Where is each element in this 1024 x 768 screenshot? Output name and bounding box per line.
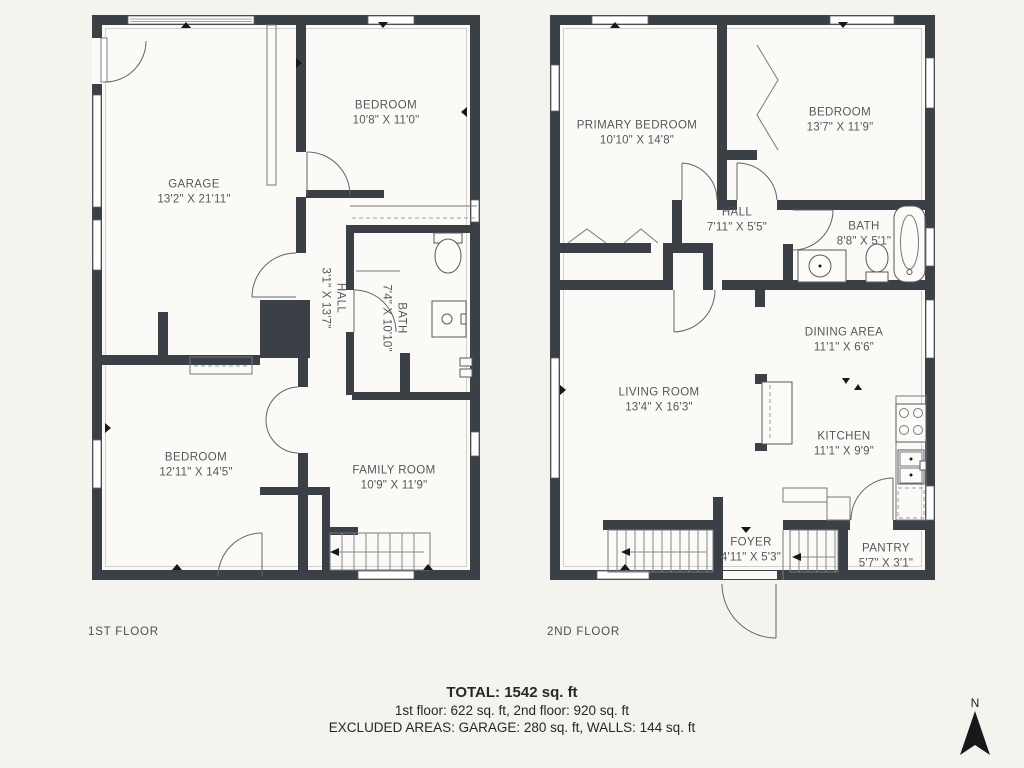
room-label-dining-area: DINING AREA 11'1" X 6'6" [805,327,884,354]
room-label-family-room: FAMILY ROOM 10'9" X 11'9" [352,465,435,492]
room-dims: 10'10" X 14'8" [577,135,698,147]
room-dims: 13'4" X 16'3" [618,402,699,414]
north-arrow-icon [960,711,990,755]
garage-door [128,16,254,24]
room-label-hall2: HALL 7'11" X 5'5" [707,207,767,234]
room-dims: 7'4" X 10'10" [381,284,393,352]
room-label-kitchen: KITCHEN 11'1" X 9'9" [814,431,874,458]
room-name: PANTRY [859,543,913,555]
room-dims: 13'2" X 21'11" [157,194,230,206]
room-label-pantry: PANTRY 5'7" X 3'1" [859,543,913,570]
room-name: BEDROOM [807,107,874,119]
room-name: BATH [396,284,408,352]
floor-areas: 1st floor: 622 sq. ft, 2nd floor: 920 sq… [329,703,695,718]
room-dims: 5'7" X 3'1" [859,558,913,570]
kitchen-sink-fixture [898,450,926,484]
room-dims: 12'11" X 14'5" [159,467,232,479]
room-name: DINING AREA [805,327,884,339]
stove-fixture [896,404,926,442]
sink-fixture [432,301,466,337]
floor2-label: 2ND FLOOR [547,626,620,638]
room-dims: 3'1" X 13'7" [320,268,332,329]
wall-fixture [460,369,472,377]
room-label-bath1: BATH 7'4" X 10'10" [381,284,408,352]
area-summary: TOTAL: 1542 sq. ft 1st floor: 622 sq. ft… [329,684,695,735]
room-dims: 10'9" X 11'9" [352,480,435,492]
room-dims: 11'1" X 9'9" [814,446,874,458]
room-dims: 13'7" X 11'9" [807,122,874,134]
room-name: PRIMARY BEDROOM [577,120,698,132]
room-dims: 10'8" X 11'0" [353,115,420,127]
room-label-bedroom-bottom: BEDROOM 12'11" X 14'5" [159,452,232,479]
room-name: BATH [837,221,891,233]
room-name: KITCHEN [814,431,874,443]
toilet2-fixture [866,244,888,282]
room-label-living-room: LIVING ROOM 13'4" X 16'3" [618,387,699,414]
floorplan-page: GARAGE 13'2" X 21'11" BEDROOM 10'8" X 11… [0,0,1024,768]
room-name: HALL [707,207,767,219]
compass-north-label: N [971,696,980,710]
excluded-areas: EXCLUDED AREAS: GARAGE: 280 sq. ft, WALL… [329,720,695,735]
room-label-bath2: BATH 8'8" X 5'1" [837,221,891,248]
total-area: TOTAL: 1542 sq. ft [329,684,695,701]
room-dims: 11'1" X 6'6" [805,342,884,354]
kitchen-island [762,382,792,444]
first-floor-plan [92,15,480,580]
room-label-primary-bedroom: PRIMARY BEDROOM 10'10" X 14'8" [577,120,698,147]
chimney-block [260,300,310,358]
room-dims: 4'11" X 5'3" [721,552,781,564]
room-name: BEDROOM [353,100,420,112]
room-label-hall1: HALL 3'1" X 13'7" [320,268,347,329]
room-dims: 7'11" X 5'5" [707,222,767,234]
room-name: FAMILY ROOM [352,465,435,477]
room-name: FOYER [721,537,781,549]
room-label-bedroom2: BEDROOM 13'7" X 11'9" [807,107,874,134]
room-label-garage: GARAGE 13'2" X 21'11" [157,179,230,206]
room-name: GARAGE [157,179,230,191]
room-name: BEDROOM [159,452,232,464]
bathtub-fixture [894,206,925,282]
room-label-bedroom-top: BEDROOM 10'8" X 11'0" [353,100,420,127]
room-name: HALL [335,268,347,329]
room-name: LIVING ROOM [618,387,699,399]
entry-door [722,584,776,638]
wall-fixture [460,358,472,366]
toilet-fixture [434,233,462,273]
room-label-foyer: FOYER 4'11" X 5'3" [721,537,781,564]
floor1-label: 1ST FLOOR [88,626,159,638]
vanity-sink-fixture [798,250,846,282]
room-dims: 8'8" X 5'1" [837,236,891,248]
